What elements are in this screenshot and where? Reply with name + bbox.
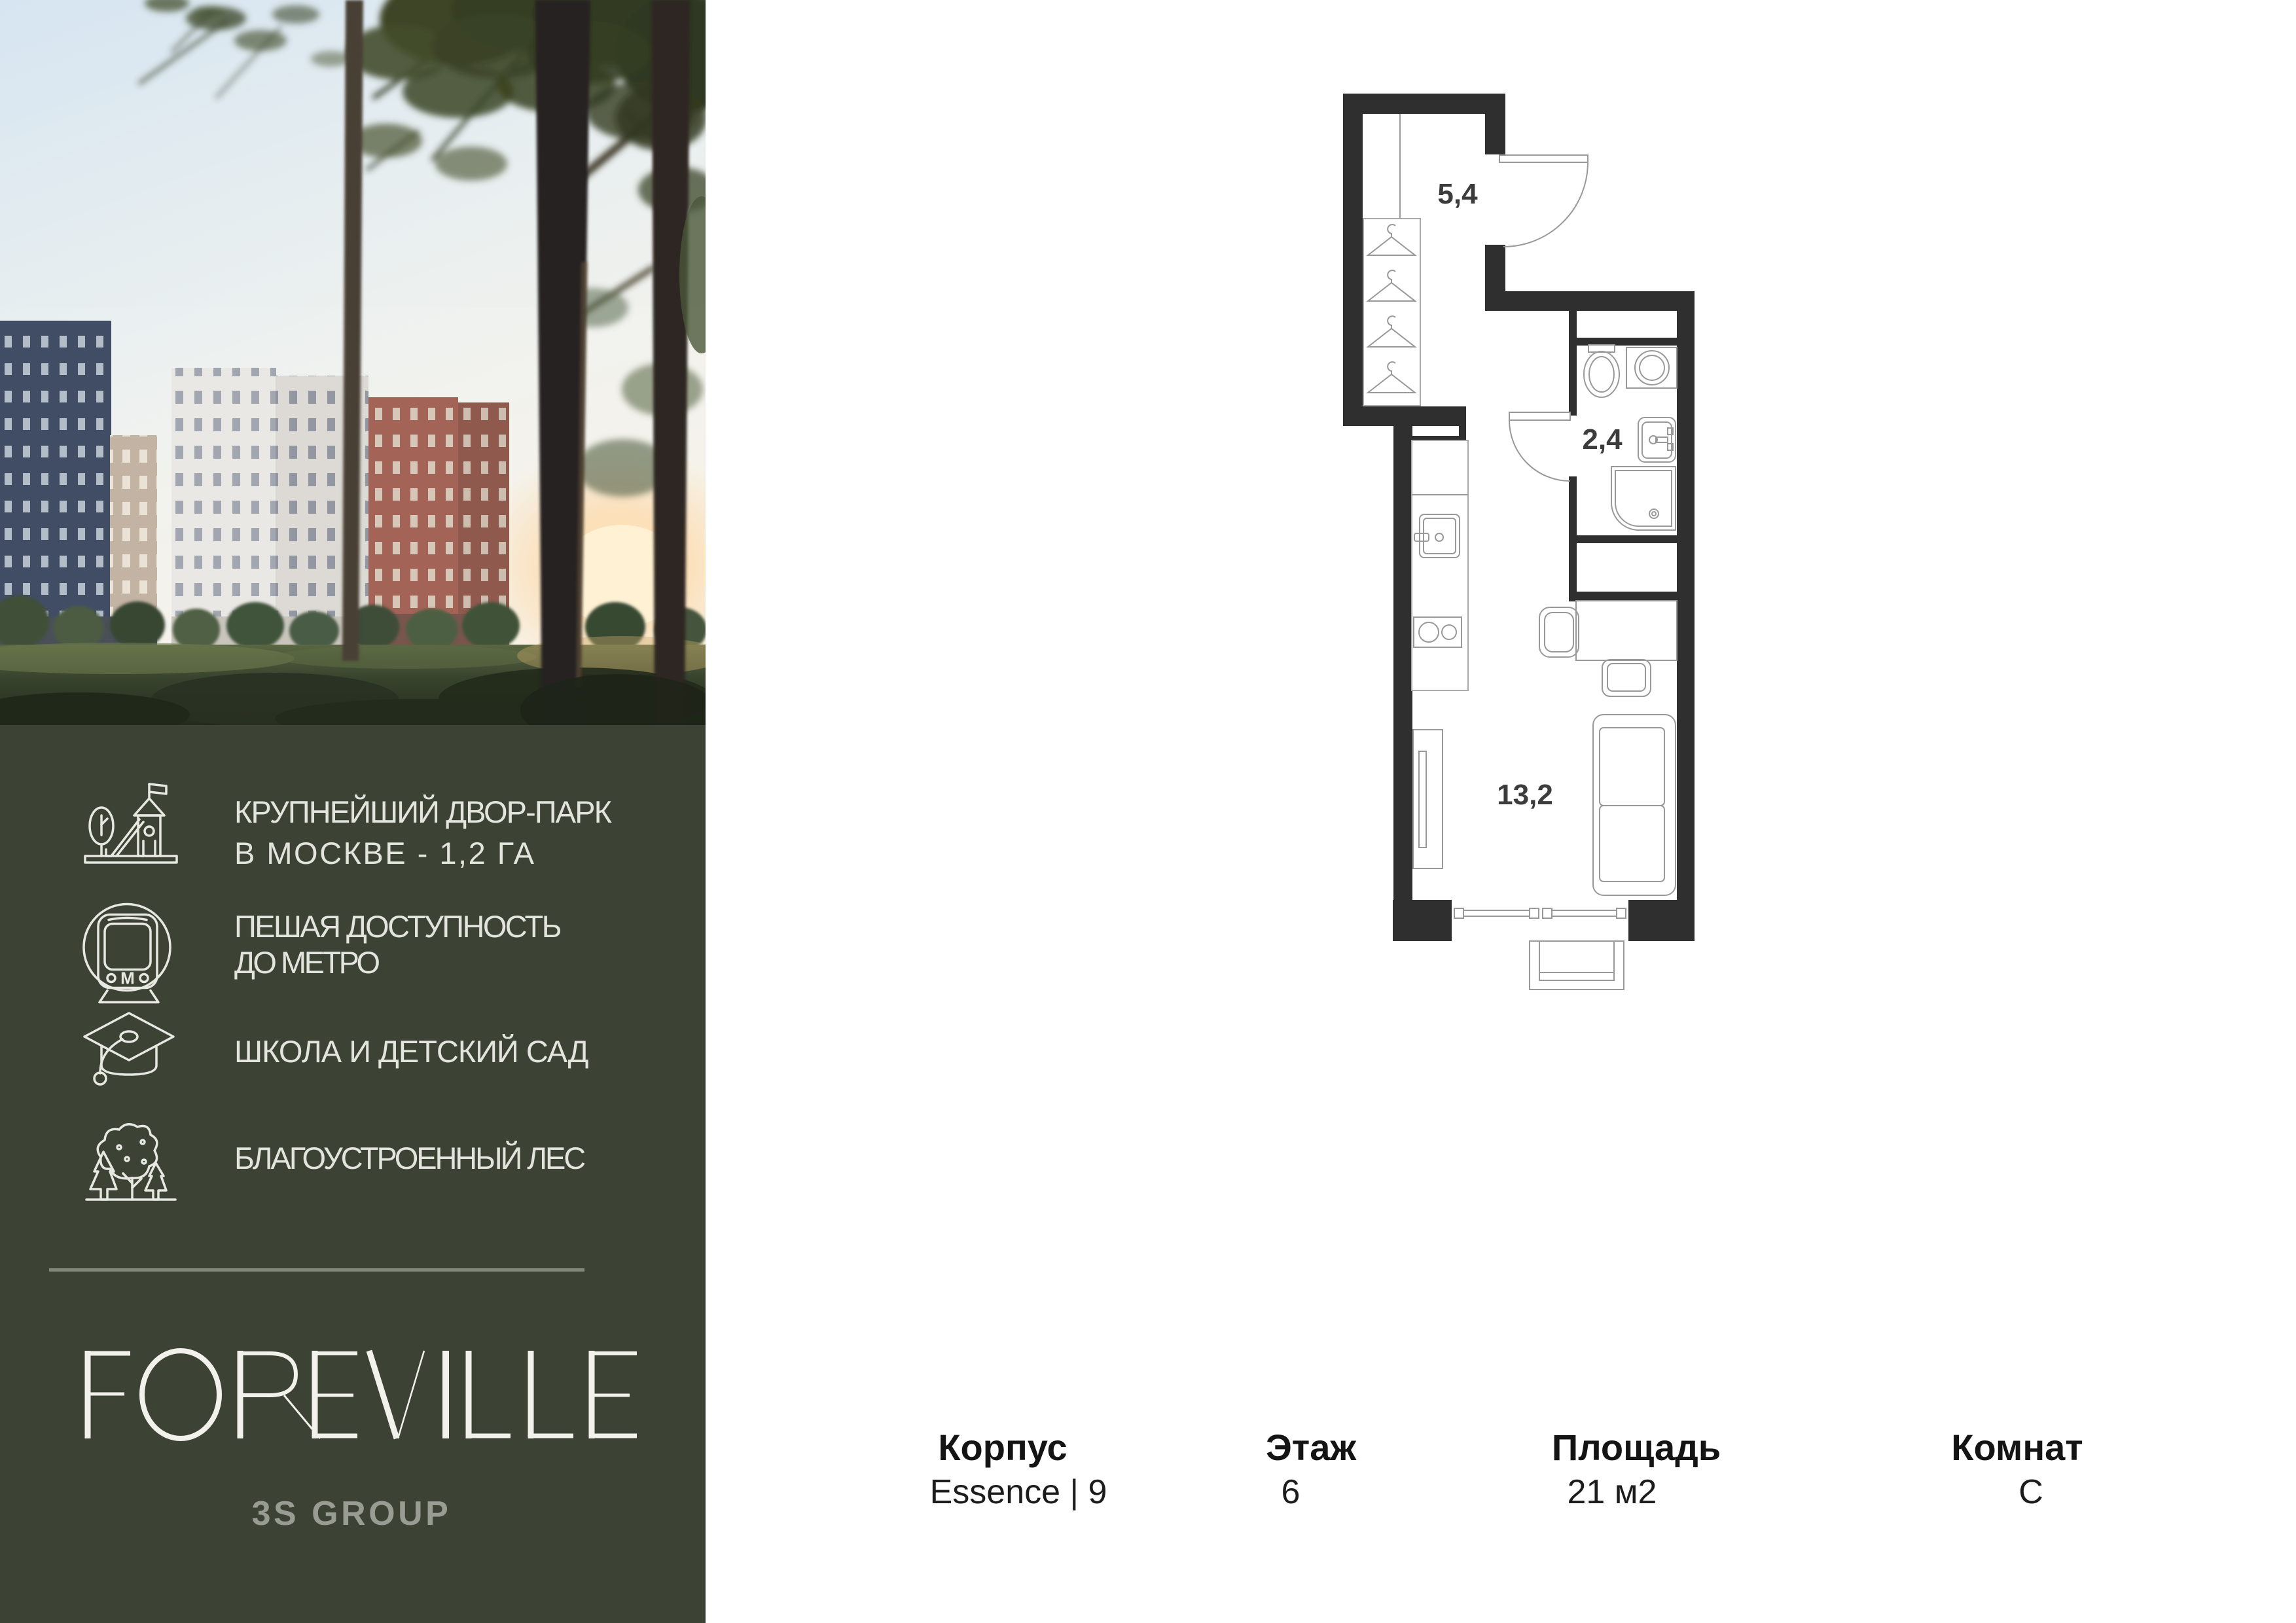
svg-text:5,4: 5,4: [1437, 178, 1478, 210]
svg-text:13,2: 13,2: [1497, 779, 1553, 811]
svg-text:2,4: 2,4: [1582, 423, 1623, 455]
svg-text:М: М: [120, 969, 135, 988]
